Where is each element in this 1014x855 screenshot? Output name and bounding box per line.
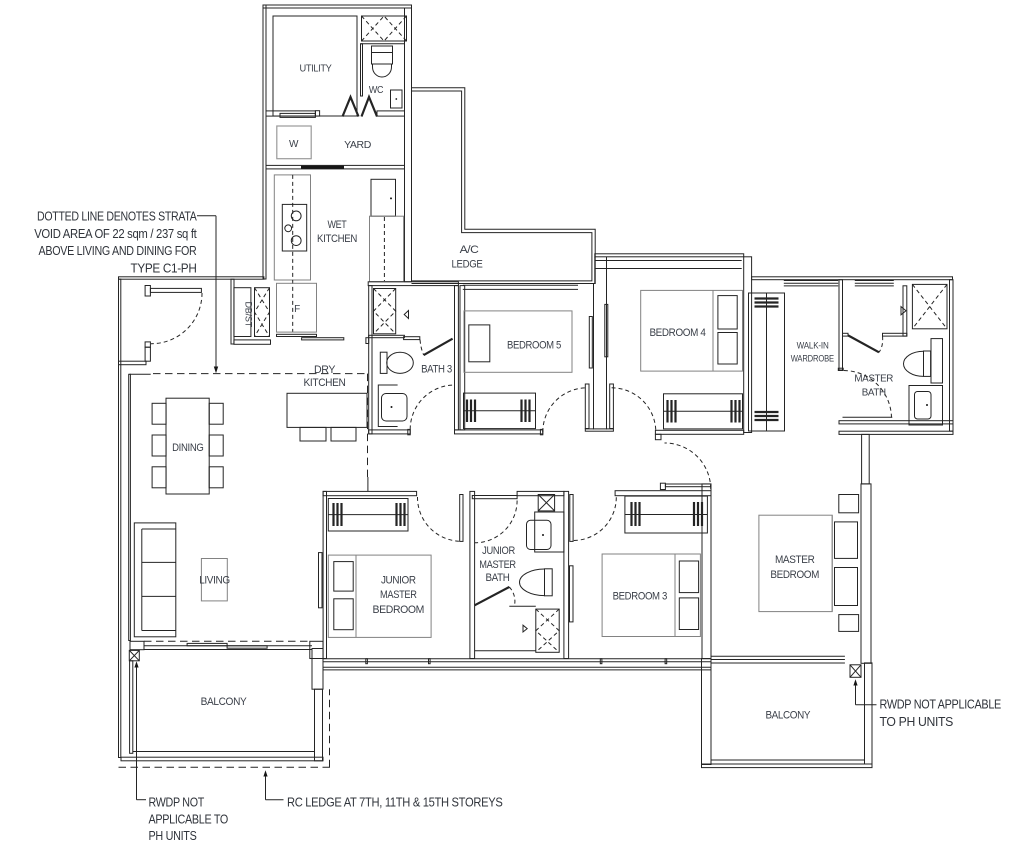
svg-text:BEDROOM 5: BEDROOM 5 <box>507 339 561 351</box>
svg-text:KITCHEN: KITCHEN <box>317 233 357 245</box>
svg-text:BATH: BATH <box>862 388 886 399</box>
svg-text:JUNIOR: JUNIOR <box>482 545 515 557</box>
svg-text:WARDROBE: WARDROBE <box>791 354 834 364</box>
svg-text:VOID AREA OF 22 sqm / 237 sq f: VOID AREA OF 22 sqm / 237 sq ft <box>34 227 197 241</box>
svg-text:MASTER: MASTER <box>380 589 417 601</box>
svg-text:RC LEDGE AT 7TH, 11TH & 15TH S: RC LEDGE AT 7TH, 11TH & 15TH STOREYS <box>287 796 503 810</box>
svg-text:WET: WET <box>328 219 347 231</box>
svg-text:TO PH UNITS: TO PH UNITS <box>880 715 954 729</box>
svg-text:YARD: YARD <box>344 140 371 151</box>
svg-text:BALCONY: BALCONY <box>201 696 248 708</box>
svg-text:RWDP NOT APPLICABLE: RWDP NOT APPLICABLE <box>880 698 1002 712</box>
svg-text:BATH 3: BATH 3 <box>421 363 452 375</box>
svg-text:DB/ST: DB/ST <box>244 302 254 328</box>
svg-text:MASTER: MASTER <box>479 559 516 571</box>
svg-text:WALK-IN: WALK-IN <box>797 341 829 351</box>
svg-text:MASTER: MASTER <box>775 554 815 566</box>
svg-text:APPLICABLE TO: APPLICABLE TO <box>149 812 229 826</box>
svg-text:PH UNITS: PH UNITS <box>149 829 197 843</box>
svg-text:A/C: A/C <box>460 244 479 256</box>
svg-text:KITCHEN: KITCHEN <box>304 377 346 389</box>
svg-text:MASTER: MASTER <box>854 374 893 385</box>
svg-text:BEDROOM 4: BEDROOM 4 <box>649 327 705 339</box>
svg-text:JUNIOR: JUNIOR <box>381 574 416 586</box>
svg-text:BATH: BATH <box>486 572 510 584</box>
svg-text:DOTTED LINE DENOTES STRATA: DOTTED LINE DENOTES STRATA <box>37 210 197 224</box>
svg-text:BALCONY: BALCONY <box>765 710 811 722</box>
svg-text:LIVING: LIVING <box>199 575 230 587</box>
svg-text:TYPE C1-PH: TYPE C1-PH <box>131 261 197 275</box>
svg-text:DRY: DRY <box>314 364 336 376</box>
svg-text:F: F <box>294 304 300 315</box>
svg-text:UTILITY: UTILITY <box>300 63 333 74</box>
svg-text:RWDP NOT: RWDP NOT <box>149 796 205 810</box>
svg-text:W: W <box>289 139 299 150</box>
svg-text:BEDROOM 3: BEDROOM 3 <box>613 591 668 603</box>
svg-text:LEDGE: LEDGE <box>452 259 483 271</box>
svg-text:BEDROOM: BEDROOM <box>770 569 819 581</box>
svg-text:BEDROOM: BEDROOM <box>373 604 425 616</box>
svg-text:WC: WC <box>369 85 383 96</box>
svg-text:ABOVE LIVING AND DINING FOR: ABOVE LIVING AND DINING FOR <box>39 244 197 258</box>
svg-text:DINING: DINING <box>172 442 203 454</box>
